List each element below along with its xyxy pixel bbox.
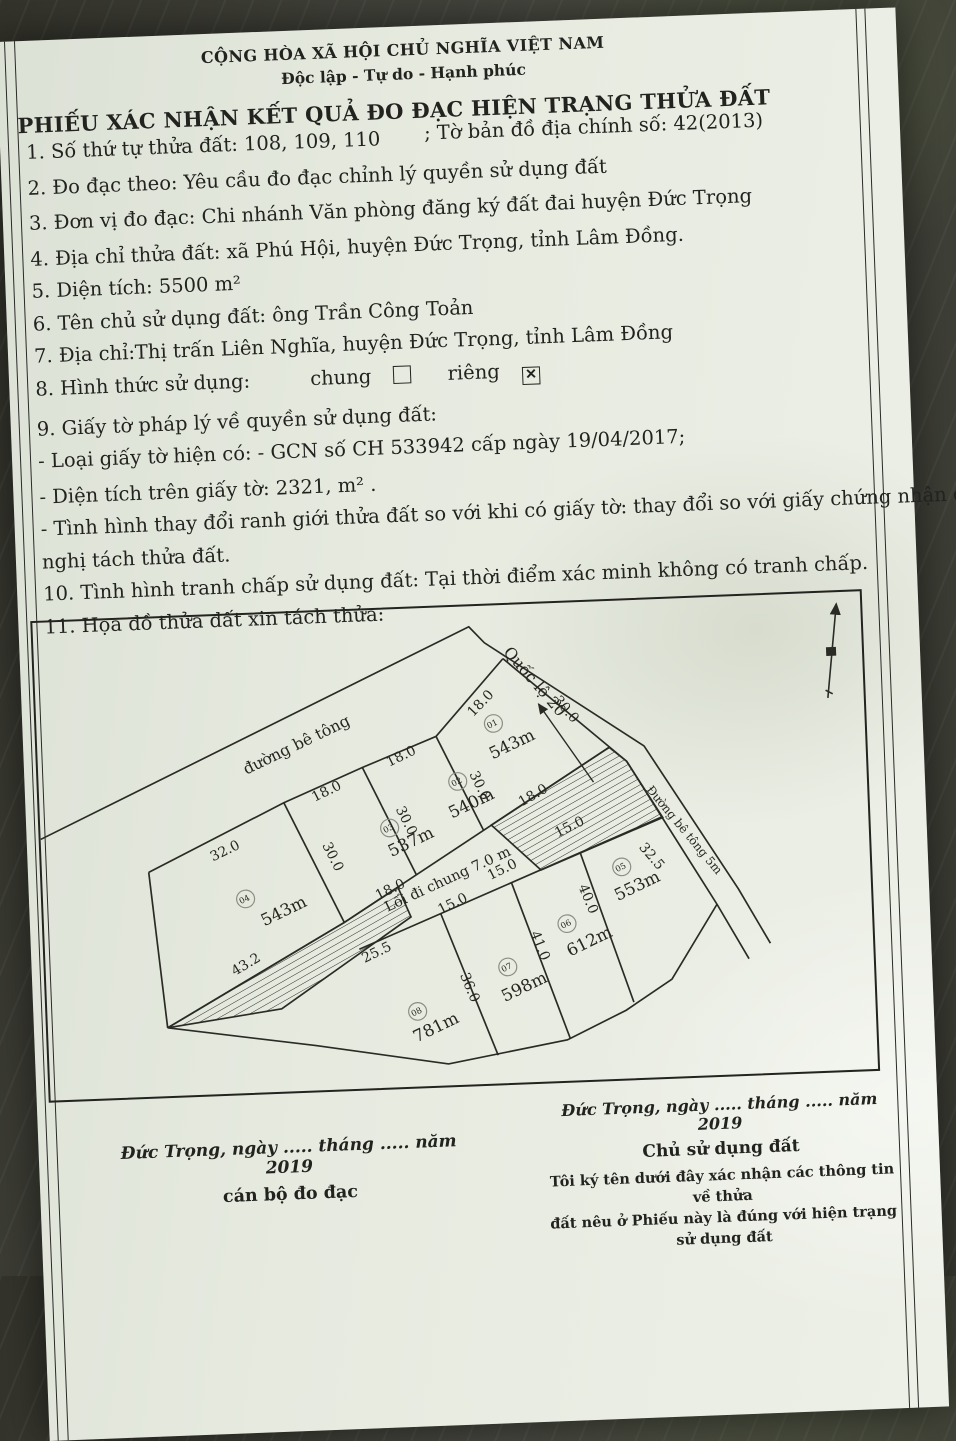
parcel-number: 08 [409, 1005, 423, 1019]
map-dimension-label: 41.0 [526, 929, 553, 963]
item-8-rieng-label: riêng [447, 359, 500, 384]
item-8-chung-label: chung [310, 364, 372, 389]
owner-date-line: Đức Trọng, ngày ..... tháng ..... năm 20… [545, 1088, 894, 1139]
surveyor-date-line: Đức Trọng, ngày ..... tháng ..... năm 20… [98, 1130, 479, 1185]
checkbox-x-mark: ✕ [525, 366, 537, 382]
photo-background: { "header": { "national_title": "CỘNG HÒ… [0, 0, 956, 1276]
map-dimension-label: 30.0 [318, 840, 346, 874]
owner-confirmation-note: Tôi ký tên dưới đây xác nhận các thông t… [548, 1158, 899, 1255]
parcel-number: 04 [237, 892, 251, 906]
map-dimension-label: 18.0 [309, 778, 344, 806]
map-dimension-label: 32.0 [208, 837, 243, 865]
map-dimension-label: 36.0 [456, 971, 483, 1005]
parcel-number: 03 [381, 821, 395, 835]
signature-block-surveyor: Đức Trọng, ngày ..... tháng ..... năm 20… [98, 1130, 480, 1212]
north-arrow-icon [822, 604, 840, 698]
checkbox-chung [393, 365, 412, 384]
plot-left-boundary [149, 872, 168, 1028]
map-linework [33, 604, 854, 1079]
parcel-area-label: 543m [486, 724, 538, 763]
parcel-number: 07 [499, 960, 513, 974]
cadastral-map: đường bê tôngQuốc lộ 20Đường bê tông 5mL… [32, 591, 878, 1100]
signature-block-owner: Đức Trọng, ngày ..... tháng ..... năm 20… [545, 1088, 899, 1255]
parcel-area-label: 543m [257, 891, 309, 930]
parcel-number: 05 [613, 860, 627, 874]
cadastral-map-frame: đường bê tôngQuốc lộ 20Đường bê tông 5mL… [30, 589, 880, 1103]
map-dimension-label: 40.0 [574, 882, 601, 916]
item-8-label: 8. Hình thức sử dụng: [35, 369, 251, 400]
map-dimension-label: 15.0 [435, 890, 470, 918]
checkbox-rieng-checked: ✕ [522, 366, 541, 385]
parcel-area-label: 612m [563, 921, 615, 960]
map-dimension-label: 18.0 [384, 743, 419, 771]
form-items: 1. Số thứ tự thửa đất: 108, 109, 110; Tờ… [26, 111, 873, 649]
road-label-top: đường bê tông [240, 711, 353, 778]
parcel-number: 06 [559, 917, 573, 931]
parcel-number: 01 [485, 717, 499, 731]
plot-top-boundary [141, 659, 511, 873]
document-paper: CỘNG HÒA XÃ HỘI CHỦ NGHĨA VIỆT NAM Độc l… [0, 7, 949, 1441]
